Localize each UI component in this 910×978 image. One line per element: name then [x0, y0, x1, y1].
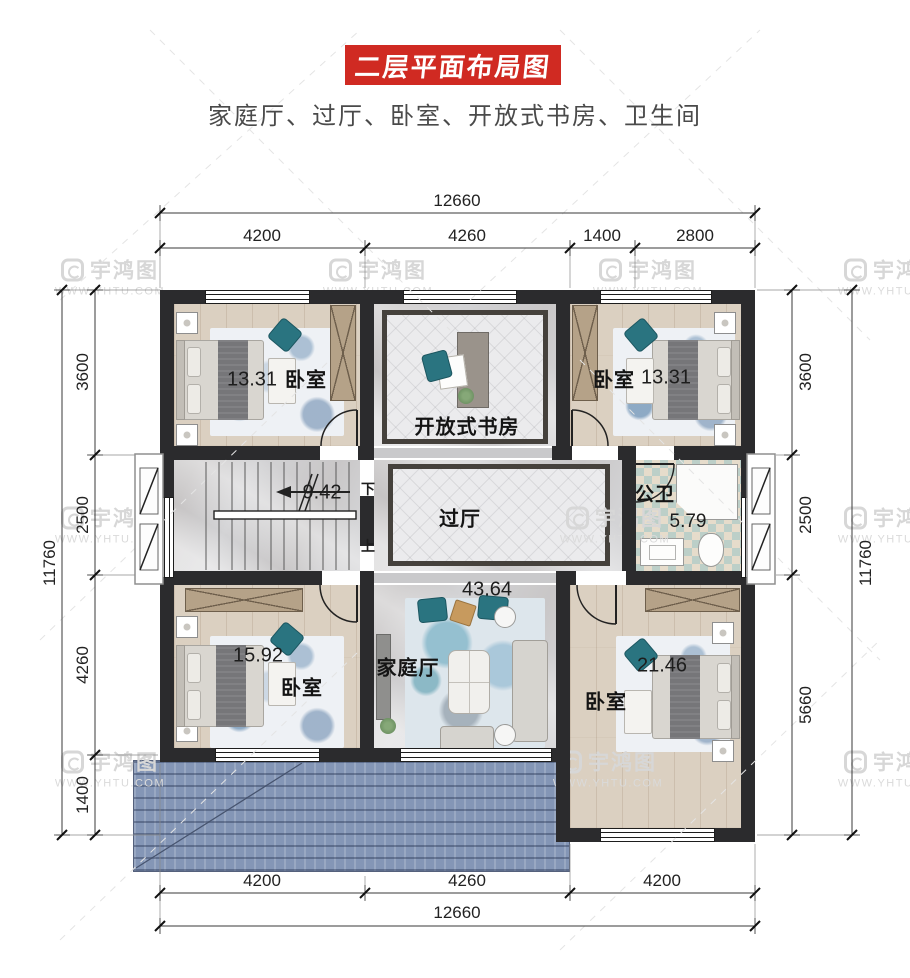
dim-left-seg-2: 2500 — [73, 496, 93, 534]
watermark-logo-icon — [599, 258, 622, 281]
wall — [556, 571, 570, 842]
wall — [622, 460, 636, 571]
bed-headboard — [176, 645, 185, 727]
wall — [556, 290, 570, 460]
dim-bottom-seg-2: 4260 — [448, 871, 486, 891]
nightstand — [176, 424, 198, 446]
wall — [160, 446, 320, 460]
bedroom-bottom-left-label: 卧室 — [281, 672, 323, 701]
stairs-down-label: 下 — [361, 479, 375, 499]
dim-right-seg-3: 5660 — [796, 686, 816, 724]
wall — [160, 571, 322, 585]
page-subtitle: 家庭厅、过厅、卧室、开放式书房、卫生间 — [0, 96, 910, 131]
watermark-logo-icon — [566, 506, 589, 529]
plant — [458, 388, 474, 404]
window — [600, 828, 715, 842]
wall — [626, 571, 755, 585]
dim-top-seg-1: 4200 — [243, 226, 281, 246]
bathroom-label: 公卫 — [635, 480, 675, 507]
dim-bottom-seg-1: 4200 — [243, 871, 281, 891]
window — [400, 748, 552, 762]
nightstand — [176, 312, 198, 334]
wardrobe — [185, 588, 303, 612]
window — [160, 497, 174, 578]
plant — [380, 718, 396, 734]
dim-left-seg-3: 4260 — [73, 646, 93, 684]
bedroom-bottom-right-label: 卧室 — [585, 686, 627, 715]
watermark-logo-icon — [844, 506, 867, 529]
window — [741, 497, 755, 578]
round-side-table — [494, 606, 516, 628]
bedroom-top-left-label: 卧室 — [285, 364, 327, 393]
wall — [360, 571, 374, 762]
nightstand — [712, 622, 734, 644]
coffee-table — [448, 650, 490, 714]
pillow — [717, 347, 731, 377]
watermark-logo-icon — [329, 258, 352, 281]
title-banner: 二层平面布局图 — [345, 45, 561, 85]
wardrobe — [645, 588, 740, 612]
pillow — [187, 384, 201, 414]
window — [403, 290, 517, 304]
pillow — [187, 347, 201, 377]
nightstand — [714, 312, 736, 334]
dim-right-seg-1: 3600 — [796, 353, 816, 391]
pillow — [717, 384, 731, 414]
dim-top-seg-3: 1400 — [583, 226, 621, 246]
bedroom-top-left-area: 13.31 — [227, 369, 277, 392]
bed-headboard — [731, 340, 740, 420]
wall — [570, 571, 576, 585]
watermark-logo-icon — [844, 258, 867, 281]
dim-bottom-seg-3: 4200 — [643, 871, 681, 891]
window — [205, 290, 310, 304]
dim-left-overall: 11760 — [40, 540, 60, 586]
dim-top-seg-2: 4260 — [448, 226, 486, 246]
pillow — [717, 700, 731, 730]
nightstand — [714, 424, 736, 446]
pillow — [717, 663, 731, 693]
floor-plan-page: 二层平面布局图 家庭厅、过厅、卧室、开放式书房、卫生间 宇鸿图 WWW.YHTU… — [0, 0, 910, 978]
watermark: 宇鸿图 WWW.YHTU.COM — [813, 255, 910, 298]
watermark-logo-icon — [61, 750, 84, 773]
dim-left-seg-4: 1400 — [73, 776, 93, 814]
pillow — [187, 690, 201, 720]
toilet — [698, 533, 724, 567]
wall — [618, 446, 636, 460]
stairs-area: 9.42 — [303, 482, 342, 505]
dim-bottom-overall: 12660 — [433, 903, 480, 923]
wardrobe — [330, 305, 356, 401]
page-title: 二层平面布局图 — [353, 47, 553, 84]
bedroom-bottom-left-area: 15.92 — [233, 645, 283, 668]
dim-right-seg-2: 2500 — [796, 496, 816, 534]
family-hall-label: 家庭厅 — [377, 652, 440, 681]
watermark: 宇鸿图 WWW.YHTU.COM — [813, 747, 910, 790]
armchair — [417, 597, 448, 624]
bathroom-area: 5.79 — [670, 511, 707, 533]
window — [215, 748, 320, 762]
dim-top-seg-4: 2800 — [676, 226, 714, 246]
window — [600, 290, 712, 304]
nightstand — [712, 740, 734, 762]
bedroom-bench — [624, 690, 652, 734]
lower-roof — [133, 760, 570, 872]
wall — [360, 290, 374, 460]
watermark-logo-icon — [61, 258, 84, 281]
stairs-up-label: 上 — [361, 536, 375, 556]
stairs-floor — [174, 460, 360, 571]
bedroom-bottom-right-area: 21.46 — [637, 655, 687, 678]
nightstand — [176, 616, 198, 638]
dim-left-seg-1: 3600 — [73, 353, 93, 391]
study-label: 开放式书房 — [415, 411, 520, 440]
watermark-brand: 宇鸿图 — [90, 255, 159, 285]
dim-right-overall: 11760 — [856, 540, 876, 586]
bedroom-top-right-area: 13.31 — [641, 367, 691, 390]
family-hall-area: 43.64 — [462, 579, 512, 602]
dim-top-overall: 12660 — [433, 191, 480, 211]
study-threshold — [374, 448, 556, 458]
sofa — [512, 640, 548, 742]
bedroom-top-right-label: 卧室 — [593, 364, 635, 393]
hallway-label: 过厅 — [439, 503, 481, 532]
bed-headboard — [731, 655, 740, 739]
wall — [674, 446, 755, 460]
pillow — [187, 653, 201, 683]
bed-headboard — [176, 340, 185, 420]
watermark-logo-icon — [844, 750, 867, 773]
round-side-table — [494, 724, 516, 746]
